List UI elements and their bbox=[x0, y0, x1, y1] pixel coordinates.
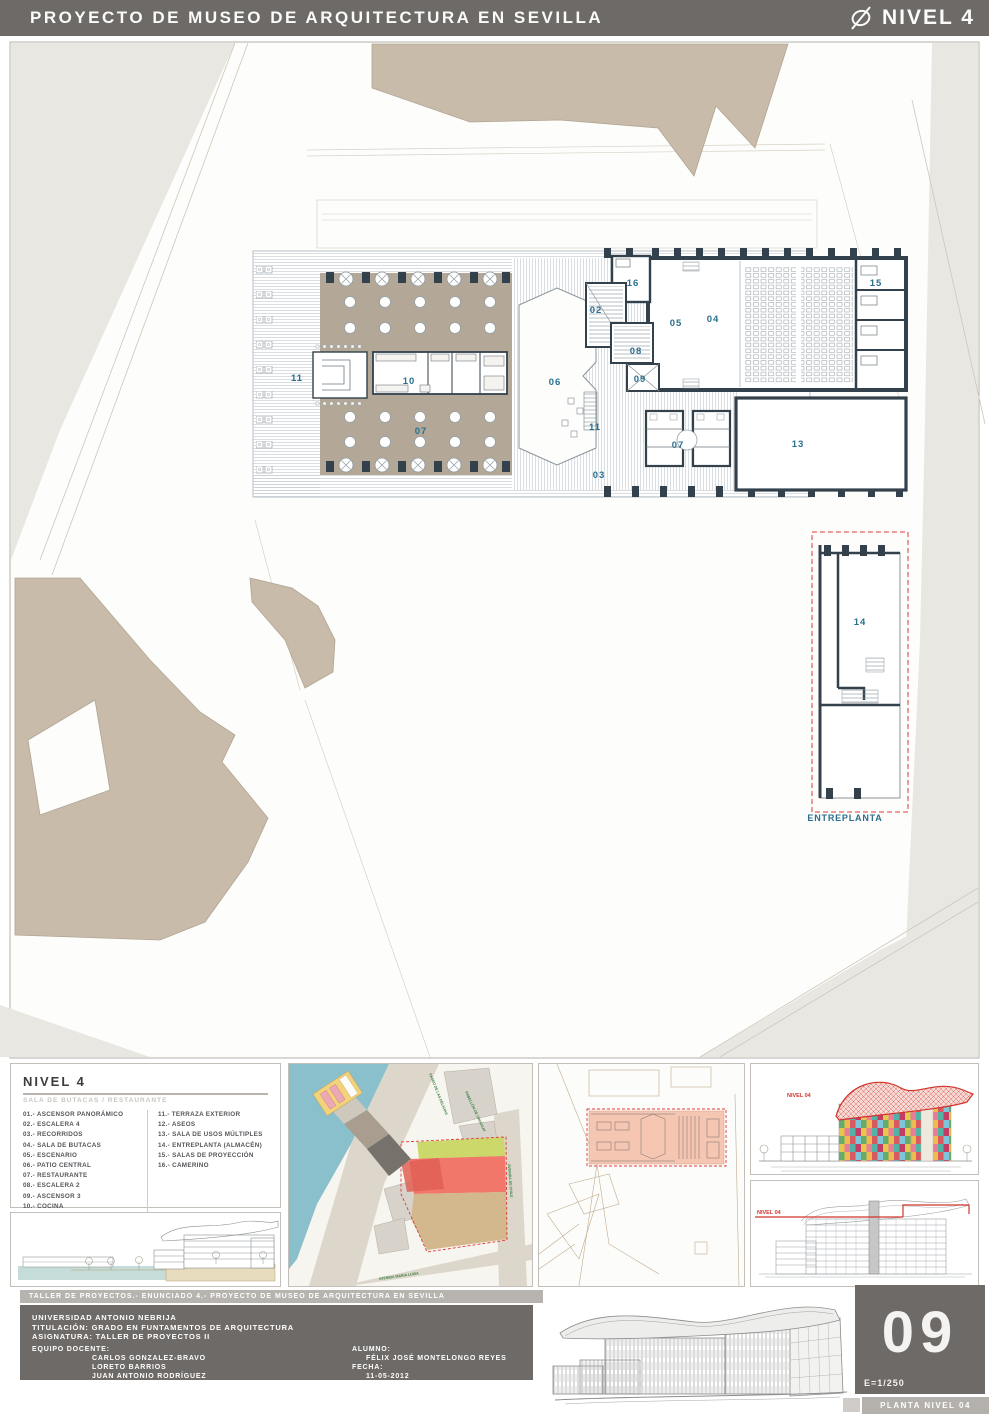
legend-item: 08.- ESCALERA 2 bbox=[23, 1181, 141, 1191]
kitchen bbox=[373, 352, 507, 394]
equipo-2: LORETO BARRIOS bbox=[92, 1364, 166, 1371]
fecha-label: FECHA: bbox=[352, 1364, 383, 1371]
court-skylight bbox=[313, 345, 367, 405]
legend-item: 07.- RESTAURANTE bbox=[23, 1171, 141, 1181]
equipo-3: JUAN ANTONIO RODRÍGUEZ bbox=[92, 1373, 206, 1380]
entreplanta-title: ENTREPLANTA bbox=[807, 813, 882, 823]
legend-item: 06.- PATIO CENTRAL bbox=[23, 1161, 141, 1171]
label-entreplanta-num: 14 bbox=[854, 617, 867, 628]
mezzanine-plan bbox=[812, 532, 908, 812]
legend-item: 03.- RECORRIDOS bbox=[23, 1130, 141, 1140]
legend-col1: 01.- ASCENSOR PANORÁMICO 02.- ESCALERA 4… bbox=[23, 1110, 148, 1212]
legend-item: 04.- SALA DE BUTACAS bbox=[23, 1141, 141, 1151]
elevation-level-tag: NIVEL 04 bbox=[787, 1093, 812, 1099]
sheet-title-strip: PLANTA NIVEL 04 bbox=[862, 1397, 989, 1414]
alumno-name: FÉLIX JOSÉ MONTELONGO REYES bbox=[366, 1355, 507, 1362]
label-terraza: 11 bbox=[291, 373, 303, 384]
sheet-strip-tab bbox=[843, 1398, 860, 1412]
legend-subtitle: SALA DE BUTACAS / RESTAURANTE bbox=[23, 1097, 268, 1104]
label-escalera4: 02 bbox=[590, 305, 603, 316]
legend-item: 12.- ASEOS bbox=[158, 1120, 263, 1130]
key-plan-panel bbox=[538, 1063, 745, 1287]
facade-gap bbox=[921, 1109, 933, 1161]
elevation-panel: NIVEL 04 bbox=[750, 1063, 979, 1175]
university: UNIVERSIDAD ANTONIO NEBRIJA bbox=[32, 1313, 177, 1322]
label-patio: 06 bbox=[549, 377, 562, 388]
section-level-tag: NIVEL 04 bbox=[757, 1210, 782, 1216]
label-escenario: 05 bbox=[670, 318, 683, 329]
presentation-board: PROYECTO DE MUSEO DE ARQUITECTURA EN SEV… bbox=[0, 0, 989, 1415]
sheet-number: 09 bbox=[855, 1299, 985, 1366]
label-terraza-b: 11 bbox=[589, 422, 601, 433]
label-camerino: 16 bbox=[627, 278, 640, 289]
label-proyeccion: 15 bbox=[870, 278, 883, 289]
label-recorridos: 03 bbox=[593, 470, 606, 481]
multipurpose-room bbox=[736, 398, 906, 490]
legend-item: 13.- SALA DE USOS MÚLTIPLES bbox=[158, 1130, 263, 1140]
asignatura: ASIGNATURA: TALLER DE PROYECTOS II bbox=[32, 1332, 210, 1341]
auditorium bbox=[648, 258, 906, 390]
zone-red-dark bbox=[401, 1158, 444, 1192]
site-location-panel: PASEO DE LAS DELICIAS PABELLÓN DE URUGUA… bbox=[288, 1063, 533, 1287]
seating-bank-right bbox=[801, 267, 853, 383]
label-restaurante: 07 bbox=[415, 426, 428, 437]
legend-item: 09.- ASCENSOR 3 bbox=[23, 1192, 141, 1202]
label-aseos: 07 bbox=[672, 440, 685, 451]
label-butacas: 04 bbox=[707, 314, 720, 325]
river-water bbox=[18, 1266, 166, 1280]
legend-item: 05.- ESCENARIO bbox=[23, 1151, 141, 1161]
footer-strip: TALLER DE PROYECTOS.- ENUNCIADO 4.- PROY… bbox=[20, 1290, 543, 1303]
annex-wing bbox=[781, 1136, 839, 1161]
section-core bbox=[869, 1201, 879, 1274]
legend-item: 11.- TERRAZA EXTERIOR bbox=[158, 1110, 263, 1120]
label-escalera2: 08 bbox=[630, 346, 643, 357]
equipo-label: EQUIPO DOCENTE: bbox=[32, 1346, 110, 1353]
footer-info-box: UNIVERSIDAD ANTONIO NEBRIJA TITULACIÓN: … bbox=[20, 1305, 533, 1380]
label-usos-multiples: 13 bbox=[792, 439, 805, 450]
waterfront-elevation-panel bbox=[10, 1212, 281, 1287]
legend-title: NIVEL 4 bbox=[23, 1074, 268, 1089]
label-ascensor3: 09 bbox=[634, 374, 647, 385]
alumno-label: ALUMNO: bbox=[352, 1346, 391, 1353]
legend-item: 10.- COCINA bbox=[23, 1202, 141, 1212]
site-floor-plan-drawing: 11 10 07 06 02 05 04 16 15 08 09 11 07 1… bbox=[0, 0, 989, 1060]
titulacion: TITULACIÓN: GRADO EN FUNTAMENTOS DE ARQU… bbox=[32, 1323, 294, 1332]
legend-item: 14.- ENTREPLANTA (ALMACÉN) bbox=[158, 1141, 263, 1151]
seating-bank-left bbox=[744, 267, 796, 383]
highlighted-level-plan bbox=[587, 1109, 726, 1166]
equipo-1: CARLOS GONZALEZ-BRAVO bbox=[92, 1355, 206, 1362]
legend-col2: 11.- TERRAZA EXTERIOR 12.- ASEOS 13.- SA… bbox=[148, 1110, 263, 1212]
sheet-scale: E=1/250 bbox=[864, 1378, 905, 1388]
legend-item: 01.- ASCENSOR PANORÁMICO bbox=[23, 1110, 141, 1120]
legend-item: 16.- CAMERINO bbox=[158, 1161, 263, 1171]
fecha-value: 11-05-2012 bbox=[366, 1373, 409, 1380]
legend-item: 02.- ESCALERA 4 bbox=[23, 1120, 141, 1130]
legend-item: 15.- SALAS DE PROYECCIÓN bbox=[158, 1151, 263, 1161]
label-cocina: 10 bbox=[403, 376, 416, 387]
legend-rule bbox=[23, 1093, 268, 1095]
sheet-number-box: 09 E=1/250 bbox=[855, 1285, 985, 1394]
legend-panel: NIVEL 4 SALA DE BUTACAS / RESTAURANTE 01… bbox=[10, 1063, 281, 1208]
building-sketch bbox=[545, 1288, 855, 1415]
section-panel: NIVEL 04 bbox=[750, 1180, 979, 1287]
